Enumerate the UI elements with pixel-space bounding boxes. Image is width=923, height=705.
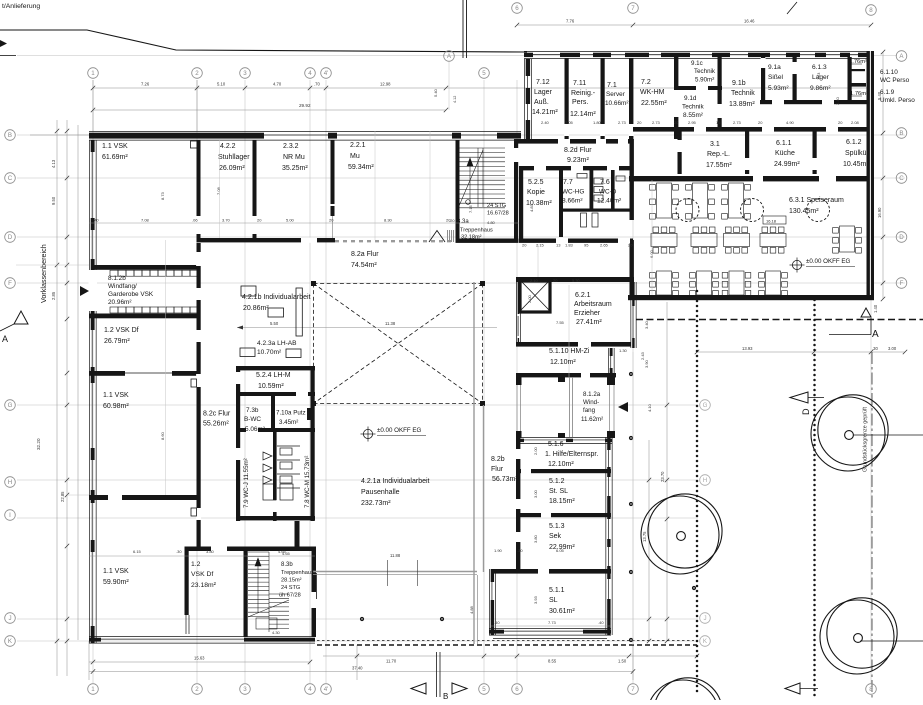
svg-text:15.63: 15.63 (194, 656, 205, 661)
svg-text:5: 5 (482, 70, 486, 77)
svg-text:8.55: 8.55 (548, 659, 557, 664)
svg-text:Vorklassenbereich: Vorklassenbereich (39, 244, 48, 303)
svg-text:6.1.1: 6.1.1 (776, 140, 792, 147)
svg-text:20.96m²: 20.96m² (108, 299, 131, 306)
svg-text:B-WC: B-WC (244, 416, 261, 423)
svg-text:7.1: 7.1 (607, 82, 617, 89)
svg-text:8: 8 (869, 7, 873, 14)
svg-text:Umkl. Perso: Umkl. Perso (880, 97, 915, 104)
svg-text:7: 7 (631, 686, 635, 693)
svg-text:3.70: 3.70 (222, 218, 231, 223)
svg-text:13.89m²: 13.89m² (729, 101, 755, 108)
svg-text:37.40: 37.40 (352, 666, 363, 671)
svg-text:23.18m²: 23.18m² (191, 582, 217, 589)
svg-text:22.55m²: 22.55m² (641, 100, 667, 107)
svg-text:2: 2 (195, 70, 199, 77)
svg-text:5.1.6: 5.1.6 (548, 441, 564, 448)
svg-text:3.80: 3.80 (206, 549, 215, 554)
svg-text:3.00: 3.00 (888, 346, 897, 351)
svg-text:20: 20 (674, 120, 679, 125)
svg-text:9.23m²: 9.23m² (567, 157, 589, 164)
svg-text:4.10: 4.10 (647, 403, 652, 412)
svg-text:2.73: 2.73 (733, 120, 742, 125)
svg-text:1.1 VSK: 1.1 VSK (103, 568, 129, 575)
svg-text:7.6: 7.6 (600, 179, 610, 186)
svg-text:D: D (8, 234, 13, 241)
svg-text:7.3b: 7.3b (246, 407, 259, 414)
svg-text:20: 20 (257, 218, 262, 223)
svg-text:I: I (9, 512, 11, 519)
svg-text:Auß.: Auß. (534, 99, 549, 106)
svg-text:fang: fang (583, 407, 596, 414)
svg-text:7.55: 7.55 (556, 320, 565, 325)
svg-text:5.90m²: 5.90m² (695, 77, 714, 84)
svg-text:18.15m²: 18.15m² (549, 498, 575, 505)
svg-text:6: 6 (515, 5, 519, 12)
svg-text:.06: .06 (192, 218, 198, 223)
svg-text:WK-HM: WK-HM (640, 89, 665, 96)
svg-text:20: 20 (553, 278, 558, 283)
svg-text:5.1.10 HM-Zi: 5.1.10 HM-Zi (549, 348, 590, 355)
svg-text:4.90: 4.90 (786, 120, 795, 125)
svg-text:7.26: 7.26 (141, 82, 150, 87)
svg-text:4: 4 (308, 686, 312, 693)
svg-text:8: 8 (869, 686, 873, 693)
svg-text:.40: .40 (598, 620, 604, 625)
svg-text:4.13: 4.13 (51, 159, 56, 168)
svg-text:2.00: 2.00 (533, 446, 538, 455)
svg-text:20.86m²: 20.86m² (243, 305, 269, 312)
svg-text:59.90m²: 59.90m² (103, 579, 129, 586)
svg-text:9.1d: 9.1d (684, 95, 697, 102)
svg-text:3.93: 3.93 (533, 595, 538, 604)
svg-text:1.90: 1.90 (494, 548, 503, 553)
svg-text:Treppenhaus: Treppenhaus (281, 570, 314, 576)
svg-text:G: G (8, 402, 13, 409)
svg-text:6.3.1 Speiseraum: 6.3.1 Speiseraum (789, 197, 844, 204)
svg-text:WC Perso: WC Perso (880, 77, 910, 84)
svg-text:1.83: 1.83 (565, 243, 574, 248)
svg-text:5.2.4 LH-M: 5.2.4 LH-M (256, 372, 291, 379)
svg-text:15: 15 (716, 120, 721, 125)
svg-text:Flur: Flur (491, 466, 504, 473)
svg-text:NR Mu: NR Mu (283, 154, 305, 161)
svg-text:4.65: 4.65 (282, 551, 291, 556)
svg-text:7.10a Putz: 7.10a Putz (276, 410, 306, 417)
svg-text:8.66m²: 8.66m² (562, 198, 583, 205)
svg-text:Rep.-L.: Rep.-L. (707, 151, 730, 158)
svg-text:95: 95 (584, 243, 589, 248)
svg-text:12.10m²: 12.10m² (550, 359, 576, 366)
svg-text:5.50: 5.50 (270, 321, 279, 326)
svg-text:Erzieher: Erzieher (574, 310, 601, 317)
svg-text:26.79m²: 26.79m² (104, 338, 130, 345)
svg-text:4.2.1b Individualarbeit: 4.2.1b Individualarbeit (242, 294, 311, 301)
svg-text:29.92: 29.92 (299, 103, 311, 108)
svg-text:3: 3 (243, 686, 247, 693)
svg-text:Windfang/: Windfang/ (108, 283, 137, 290)
svg-text:C: C (8, 175, 13, 182)
svg-text:4.80: 4.80 (487, 220, 496, 225)
svg-text:D: D (801, 408, 811, 415)
svg-text:3.40: 3.40 (644, 320, 649, 329)
svg-text:16.90: 16.90 (877, 207, 882, 218)
svg-text:20: 20 (628, 243, 633, 248)
svg-text:16.67/28: 16.67/28 (487, 211, 509, 217)
svg-text:2.40: 2.40 (835, 96, 840, 105)
svg-text:B: B (443, 692, 448, 700)
svg-text:2.10: 2.10 (530, 278, 539, 283)
svg-text:1.2 VSK Df: 1.2 VSK Df (104, 327, 139, 334)
svg-text:.30: .30 (517, 548, 523, 553)
svg-text:7.9 WC-J 11.55m²: 7.9 WC-J 11.55m² (243, 458, 250, 508)
svg-text:1.63: 1.63 (817, 73, 821, 80)
svg-text:5.1.1: 5.1.1 (549, 587, 565, 594)
svg-text:4.88: 4.88 (469, 605, 474, 614)
svg-text:10.59m²: 10.59m² (258, 383, 284, 390)
svg-text:8.1.2b: 8.1.2b (108, 275, 126, 282)
svg-text:St. SL: St. SL (549, 488, 568, 495)
svg-text:16.18: 16.18 (766, 218, 777, 223)
svg-text:6.1.2: 6.1.2 (846, 139, 862, 146)
svg-text:7.08: 7.08 (141, 218, 150, 223)
svg-text:H: H (703, 477, 707, 484)
svg-text:2.05: 2.05 (565, 120, 574, 125)
svg-text:t/Anlieferung: t/Anlieferung (2, 3, 40, 10)
svg-text:2.15: 2.15 (536, 243, 545, 248)
svg-text:G: G (703, 402, 708, 409)
svg-text:9.1a: 9.1a (768, 64, 781, 71)
svg-text:1.80: 1.80 (593, 120, 602, 125)
svg-text:12.14m²: 12.14m² (570, 111, 596, 118)
svg-text:10.66m²: 10.66m² (605, 100, 628, 107)
svg-text:3: 3 (243, 70, 247, 77)
svg-text:4.2.2: 4.2.2 (220, 143, 236, 150)
svg-text:WC-D: WC-D (599, 189, 617, 196)
svg-text:14.21m²: 14.21m² (532, 109, 558, 116)
svg-text:2.2.1: 2.2.1 (350, 142, 366, 149)
svg-text:20: 20 (758, 120, 763, 125)
svg-text:2.3.2: 2.3.2 (283, 143, 299, 150)
svg-text:30.61m²: 30.61m² (549, 608, 575, 615)
svg-text:7.7: 7.7 (563, 179, 573, 186)
svg-text:J: J (703, 615, 706, 622)
svg-text:D: D (899, 234, 904, 241)
svg-text:16.46: 16.46 (744, 19, 755, 24)
svg-text:A: A (2, 334, 8, 344)
svg-text:Technik: Technik (731, 90, 755, 97)
svg-text:7.2: 7.2 (641, 79, 651, 86)
svg-text:F: F (8, 280, 12, 287)
svg-text:3.1: 3.1 (710, 141, 720, 148)
svg-text:1.1 VSK: 1.1 VSK (102, 143, 128, 150)
svg-text:Küche: Küche (775, 150, 795, 157)
svg-text:8.2a Flur: 8.2a Flur (351, 251, 379, 258)
svg-text:7.11: 7.11 (573, 80, 586, 87)
svg-text:.70: .70 (314, 82, 320, 87)
svg-text:5.1.3: 5.1.3 (549, 523, 565, 530)
svg-text:5.06m²: 5.06m² (245, 426, 265, 433)
svg-text:1.1 VSK: 1.1 VSK (103, 392, 129, 399)
svg-text:.30: .30 (872, 346, 878, 351)
svg-text:2.08: 2.08 (851, 120, 860, 125)
svg-text:56.73m²: 56.73m² (492, 476, 518, 483)
svg-text:8.55m²: 8.55m² (683, 112, 703, 119)
svg-text:1.40: 1.40 (873, 304, 878, 313)
svg-text:SL: SL (549, 597, 558, 604)
svg-text:35.25m²: 35.25m² (282, 165, 308, 172)
svg-text:4.12: 4.12 (453, 96, 457, 103)
svg-text:23.70: 23.70 (660, 471, 665, 482)
svg-text:1: 1 (91, 70, 95, 77)
svg-text:Technik: Technik (694, 68, 716, 75)
svg-text:7: 7 (631, 5, 635, 12)
svg-text:232.73m²: 232.73m² (361, 500, 391, 507)
svg-text:32.20: 32.20 (36, 438, 41, 450)
svg-text:9.86m²: 9.86m² (810, 85, 831, 92)
svg-text:±0.00 OKFF EG: ±0.00 OKFF EG (377, 427, 422, 434)
svg-text:1: 1 (91, 686, 95, 693)
svg-text:2.43: 2.43 (640, 351, 645, 360)
svg-text:7.15: 7.15 (468, 204, 473, 213)
svg-text:4': 4' (324, 686, 329, 693)
svg-text:Stuhllager: Stuhllager (218, 154, 250, 161)
svg-text:5: 5 (482, 686, 486, 693)
svg-text:2.40: 2.40 (541, 120, 550, 125)
svg-text:12.98: 12.98 (380, 82, 391, 87)
svg-text:1.30: 1.30 (619, 348, 628, 353)
svg-text:C: C (899, 175, 904, 182)
svg-text:Pausenhalle: Pausenhalle (361, 489, 400, 496)
svg-text:9.50: 9.50 (51, 196, 56, 205)
svg-text:8.3a: 8.3a (457, 219, 469, 225)
svg-text:1.50: 1.50 (618, 659, 627, 664)
svg-text:2.95: 2.95 (688, 120, 697, 125)
svg-text:2.00: 2.00 (527, 294, 532, 303)
svg-text:4.2.1a Individualarbeit: 4.2.1a Individualarbeit (361, 478, 430, 485)
svg-text:8.2b: 8.2b (491, 456, 505, 463)
svg-text:17.55m²: 17.55m² (706, 162, 732, 169)
svg-text:8.73: 8.73 (160, 191, 165, 200)
svg-text:28.15m²: 28.15m² (281, 578, 302, 584)
svg-text:Reinig.-: Reinig.- (571, 90, 596, 97)
svg-text:12.40m²: 12.40m² (597, 198, 622, 205)
svg-text:5.93m²: 5.93m² (768, 85, 789, 92)
svg-text:6.15: 6.15 (133, 549, 142, 554)
svg-text:26.09m²: 26.09m² (219, 165, 245, 172)
svg-text:J: J (8, 615, 11, 622)
svg-text:8.30: 8.30 (384, 218, 393, 223)
svg-text:7.12: 7.12 (536, 79, 550, 86)
svg-text:.40: .40 (494, 620, 500, 625)
svg-text:6: 6 (515, 686, 519, 693)
svg-text:6.1.3: 6.1.3 (812, 64, 827, 71)
svg-text:A: A (872, 329, 879, 340)
svg-text:59.34m²: 59.34m² (348, 164, 374, 171)
svg-text:Treppenhaus: Treppenhaus (460, 228, 493, 234)
svg-text:6.1.9: 6.1.9 (880, 89, 895, 96)
svg-text:.30: .30 (176, 549, 182, 554)
svg-text:60.98m²: 60.98m² (103, 403, 129, 410)
svg-text:130.45m²: 130.45m² (789, 208, 819, 215)
svg-text:20: 20 (637, 120, 642, 125)
svg-text:2.73: 2.73 (618, 120, 627, 125)
svg-text:61.69m²: 61.69m² (102, 154, 128, 161)
svg-text:Pers.: Pers. (572, 99, 588, 106)
svg-text:Lager: Lager (534, 89, 553, 96)
svg-text:7.76: 7.76 (566, 19, 575, 24)
svg-text:13.93: 13.93 (742, 346, 753, 351)
svg-text:8.60: 8.60 (160, 431, 165, 440)
svg-text:6.2.1: 6.2.1 (575, 292, 591, 299)
svg-text:4.70: 4.70 (273, 82, 282, 87)
svg-text:Server: Server (606, 91, 626, 98)
svg-text:7.73: 7.73 (548, 620, 557, 625)
svg-text:1. Hilfe/Elternspr.: 1. Hilfe/Elternspr. (545, 451, 598, 458)
svg-text:VSK Df: VSK Df (191, 571, 213, 578)
svg-text:11.88: 11.88 (390, 553, 401, 558)
svg-text:4.2.3a LH-AB: 4.2.3a LH-AB (257, 340, 297, 347)
svg-text:WC-HG: WC-HG (562, 189, 584, 196)
svg-text:üh 67/28: üh 67/28 (279, 593, 301, 599)
svg-text:Garderobe VSK: Garderobe VSK (108, 291, 154, 298)
svg-text:22.85: 22.85 (60, 491, 65, 502)
svg-text:.40: .40 (93, 218, 99, 223)
svg-text:2.73: 2.73 (652, 120, 661, 125)
svg-text:6.05: 6.05 (556, 548, 565, 553)
svg-text:24 STG: 24 STG (281, 585, 300, 591)
svg-text:8.2d Flur: 8.2d Flur (564, 147, 592, 154)
svg-text:Sißel: Sißel (768, 74, 784, 81)
svg-text:6.1.10: 6.1.10 (880, 69, 898, 76)
svg-text:Technik: Technik (682, 104, 704, 111)
svg-text:10.70m²: 10.70m² (257, 349, 282, 356)
svg-text:20: 20 (522, 243, 527, 248)
svg-text:Arbeitsraum: Arbeitsraum (574, 301, 612, 308)
svg-text:32.18m²: 32.18m² (461, 235, 482, 241)
svg-text:12.10m²: 12.10m² (548, 461, 574, 468)
svg-text:4: 4 (308, 70, 312, 77)
svg-text:24 STG: 24 STG (487, 203, 506, 209)
svg-text:20: 20 (329, 218, 334, 223)
svg-text:20: 20 (838, 120, 843, 125)
svg-text:B: B (899, 130, 903, 137)
svg-text:Spülkü: Spülkü (845, 150, 867, 157)
svg-text:24.99m²: 24.99m² (774, 161, 800, 168)
svg-text:H: H (8, 479, 12, 486)
svg-text:2.65: 2.65 (600, 243, 609, 248)
svg-text:1.2: 1.2 (191, 561, 201, 568)
svg-text:3.80: 3.80 (533, 534, 538, 543)
svg-text:5.1.2: 5.1.2 (549, 478, 565, 485)
svg-text:6.00: 6.00 (649, 249, 654, 258)
svg-text:5.10: 5.10 (217, 82, 226, 87)
svg-text:4.30: 4.30 (272, 630, 281, 635)
svg-text:4': 4' (324, 70, 329, 77)
svg-text:13.75: 13.75 (642, 531, 647, 542)
svg-text:8.1.2a: 8.1.2a (583, 391, 601, 398)
svg-text:7.8 WC-M 15.73m²: 7.8 WC-M 15.73m² (304, 456, 311, 508)
svg-text:8.3b: 8.3b (281, 562, 293, 568)
svg-text:10.45m²: 10.45m² (843, 161, 869, 168)
svg-text:3.45m²: 3.45m² (279, 419, 298, 426)
svg-text:5.30: 5.30 (572, 278, 581, 283)
svg-text:11.38: 11.38 (385, 321, 396, 326)
svg-text:9.1c: 9.1c (691, 60, 703, 67)
svg-text:74.54m²: 74.54m² (351, 262, 377, 269)
svg-text:Mu: Mu (350, 153, 360, 160)
svg-text:Sek: Sek (549, 533, 562, 540)
svg-text:2: 2 (195, 686, 199, 693)
svg-text:Kopie: Kopie (527, 189, 545, 196)
svg-text:55.26m²: 55.26m² (203, 421, 229, 428)
svg-text:F: F (900, 280, 904, 287)
svg-text:11.70: 11.70 (386, 659, 397, 664)
svg-text:Wind-: Wind- (583, 399, 599, 406)
svg-text:B: B (8, 132, 12, 139)
svg-text:4.83: 4.83 (529, 203, 534, 212)
svg-text:±0.00 OKFF EG: ±0.00 OKFF EG (806, 258, 851, 265)
svg-text:13: 13 (556, 243, 561, 248)
svg-text:5.40: 5.40 (433, 88, 438, 97)
svg-text:7.08: 7.08 (216, 186, 221, 195)
svg-text:5.2.5: 5.2.5 (528, 179, 544, 186)
svg-text:11.62m²: 11.62m² (581, 416, 603, 423)
svg-text:5.00: 5.00 (286, 218, 295, 223)
svg-text:8.2c Flur: 8.2c Flur (203, 411, 231, 418)
svg-text:2.85: 2.85 (51, 291, 56, 300)
svg-text:20: 20 (446, 218, 451, 223)
svg-text:9.1b: 9.1b (732, 80, 746, 87)
svg-text:27.41m²: 27.41m² (576, 319, 602, 326)
svg-text:3.00: 3.00 (533, 489, 538, 498)
